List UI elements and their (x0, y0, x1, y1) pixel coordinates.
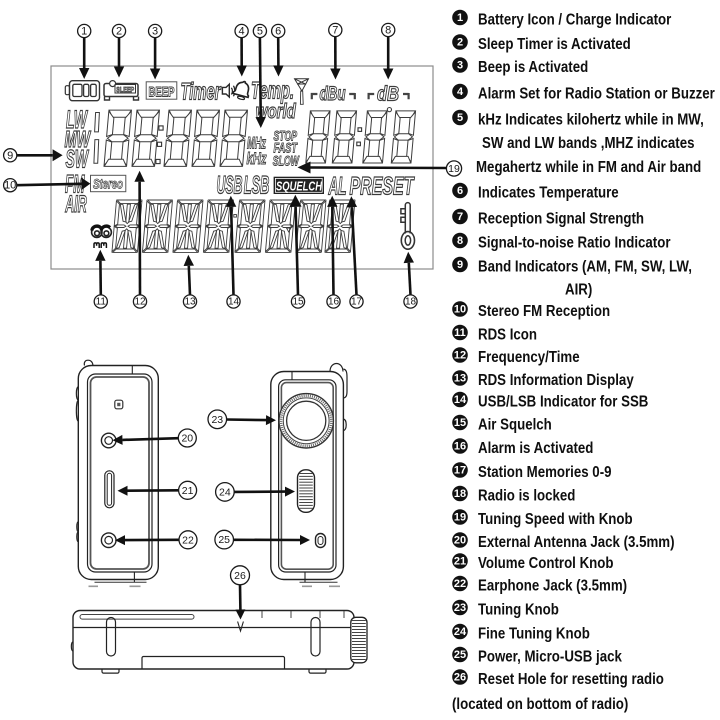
svg-text:Reset Hole for resetting radio: Reset Hole for resetting radio (478, 671, 664, 688)
svg-text:RDS Information Display: RDS Information Display (478, 372, 634, 389)
svg-text:9: 9 (457, 259, 463, 271)
svg-text:13: 13 (454, 373, 466, 385)
svg-text:6: 6 (275, 26, 281, 38)
svg-text:5: 5 (257, 26, 263, 38)
svg-text:kHz Indicates kilohertz while: kHz Indicates kilohertz while in MW, (478, 111, 704, 128)
svg-text:Station Memories 0-9: Station Memories 0-9 (478, 464, 612, 481)
svg-text:26: 26 (454, 672, 466, 684)
svg-text:19: 19 (454, 512, 466, 524)
svg-text:15: 15 (292, 297, 304, 308)
svg-text:Megahertz while in FM and Air: Megahertz while in FM and Air band (476, 159, 701, 176)
svg-text:21: 21 (182, 485, 194, 497)
svg-text:PRESET: PRESET (350, 172, 416, 200)
svg-text:Frequency/Time: Frequency/Time (478, 349, 580, 366)
svg-text:10: 10 (454, 304, 466, 316)
svg-text:dB: dB (377, 84, 399, 106)
svg-text:Earphone Jack (3.5mm): Earphone Jack (3.5mm) (478, 577, 627, 594)
svg-text:Band Indicators (AM, FM, SW, L: Band Indicators (AM, FM, SW, LW, (478, 258, 692, 275)
svg-text:4: 4 (239, 26, 245, 38)
svg-text:20: 20 (181, 433, 193, 445)
svg-text:8: 8 (385, 25, 391, 37)
svg-text:14: 14 (228, 297, 240, 308)
svg-text:21: 21 (454, 556, 466, 568)
svg-text:Battery Icon / Charge Indicato: Battery Icon / Charge Indicator (478, 11, 671, 28)
svg-text:6: 6 (457, 185, 463, 197)
svg-text:22: 22 (454, 578, 466, 590)
svg-text:7: 7 (332, 25, 338, 37)
svg-text:1: 1 (457, 12, 463, 24)
svg-text:25: 25 (218, 534, 230, 546)
svg-text:BEEP: BEEP (149, 85, 175, 100)
svg-text:24: 24 (219, 486, 231, 498)
svg-text:Beep is Activated: Beep is Activated (478, 59, 588, 76)
svg-text:22: 22 (182, 534, 194, 546)
svg-text:19: 19 (448, 163, 460, 175)
svg-text:USB: USB (217, 172, 243, 200)
svg-text:10: 10 (4, 180, 16, 192)
svg-text:2: 2 (116, 26, 122, 38)
svg-text:16: 16 (328, 297, 340, 308)
svg-text:SW and LW bands ,MHZ indicates: SW and LW bands ,MHZ indicates (482, 135, 695, 152)
svg-text:Radio is locked: Radio is locked (478, 487, 575, 504)
svg-text:24: 24 (454, 626, 467, 638)
svg-text:20: 20 (454, 535, 466, 547)
svg-text:dBu: dBu (320, 84, 346, 105)
svg-text:Power, Micro-USB jack: Power, Micro-USB jack (478, 648, 622, 665)
svg-text:2: 2 (457, 37, 463, 49)
svg-text:AIR): AIR) (565, 281, 592, 298)
svg-text:1: 1 (81, 26, 87, 38)
svg-text:Air Squelch: Air Squelch (478, 416, 552, 433)
svg-text:3: 3 (457, 60, 463, 72)
svg-text:11: 11 (454, 327, 466, 339)
svg-text:RDS Icon: RDS Icon (478, 326, 537, 343)
svg-text:17: 17 (454, 465, 466, 477)
svg-text:SLEEP: SLEEP (116, 85, 134, 94)
svg-text:23: 23 (211, 414, 223, 426)
svg-text:Signal-to-noise Ratio Indicato: Signal-to-noise Ratio Indicator (478, 234, 671, 251)
svg-text:External Antenna Jack (3.5mm): External Antenna Jack (3.5mm) (478, 534, 675, 551)
svg-text:(located on bottom of radio): (located on bottom of radio) (452, 696, 628, 713)
svg-text:7: 7 (457, 211, 463, 223)
svg-text:SQUELCH: SQUELCH (276, 179, 322, 194)
svg-text:12: 12 (454, 350, 466, 362)
svg-text:11: 11 (96, 297, 107, 308)
svg-text:13: 13 (184, 297, 196, 308)
svg-text:8: 8 (457, 235, 463, 247)
svg-text:Tuning Speed with Knob: Tuning Speed with Knob (478, 511, 633, 528)
svg-text:5: 5 (457, 112, 463, 124)
svg-text:17: 17 (351, 297, 363, 308)
svg-text:Volume Control Knob: Volume Control Knob (478, 555, 614, 572)
svg-text:Reception Signal Strength: Reception Signal Strength (478, 210, 644, 227)
svg-text:14: 14 (454, 394, 467, 406)
svg-text:25: 25 (454, 649, 466, 661)
svg-text:12: 12 (134, 297, 146, 308)
svg-text:Indicates Temperature: Indicates Temperature (478, 184, 619, 201)
svg-text:3: 3 (152, 26, 158, 38)
svg-text:15: 15 (454, 417, 466, 429)
svg-text:Sleep Timer is Activated: Sleep Timer is Activated (478, 36, 631, 53)
svg-text:16: 16 (454, 441, 466, 453)
svg-text:AIR: AIR (65, 191, 87, 218)
svg-text:Tuning Knob: Tuning Knob (478, 601, 559, 618)
svg-text:Alarm Set for Radio Station or: Alarm Set for Radio Station or Buzzer (478, 85, 715, 102)
svg-text:4: 4 (457, 86, 464, 98)
svg-text:Stereo: Stereo (93, 177, 123, 192)
svg-text:9: 9 (7, 150, 13, 162)
svg-text:26: 26 (234, 570, 246, 582)
svg-text:18: 18 (405, 297, 417, 308)
svg-text:SLOW: SLOW (273, 152, 300, 168)
svg-text:23: 23 (454, 602, 466, 614)
svg-text:LSB: LSB (244, 172, 269, 200)
svg-text:Timer: Timer (181, 78, 222, 105)
svg-text:Alarm is Activated: Alarm is Activated (478, 440, 593, 457)
svg-text:SW: SW (66, 146, 90, 174)
svg-text:USB/LSB Indicator for SSB: USB/LSB Indicator for SSB (478, 393, 648, 410)
svg-text:kHz: kHz (247, 149, 267, 168)
svg-text:AL: AL (328, 172, 347, 200)
svg-text:Stereo FM Reception: Stereo FM Reception (478, 303, 610, 320)
svg-text:18: 18 (454, 488, 466, 500)
svg-text:Fine Tuning Knob: Fine Tuning Knob (478, 625, 590, 642)
